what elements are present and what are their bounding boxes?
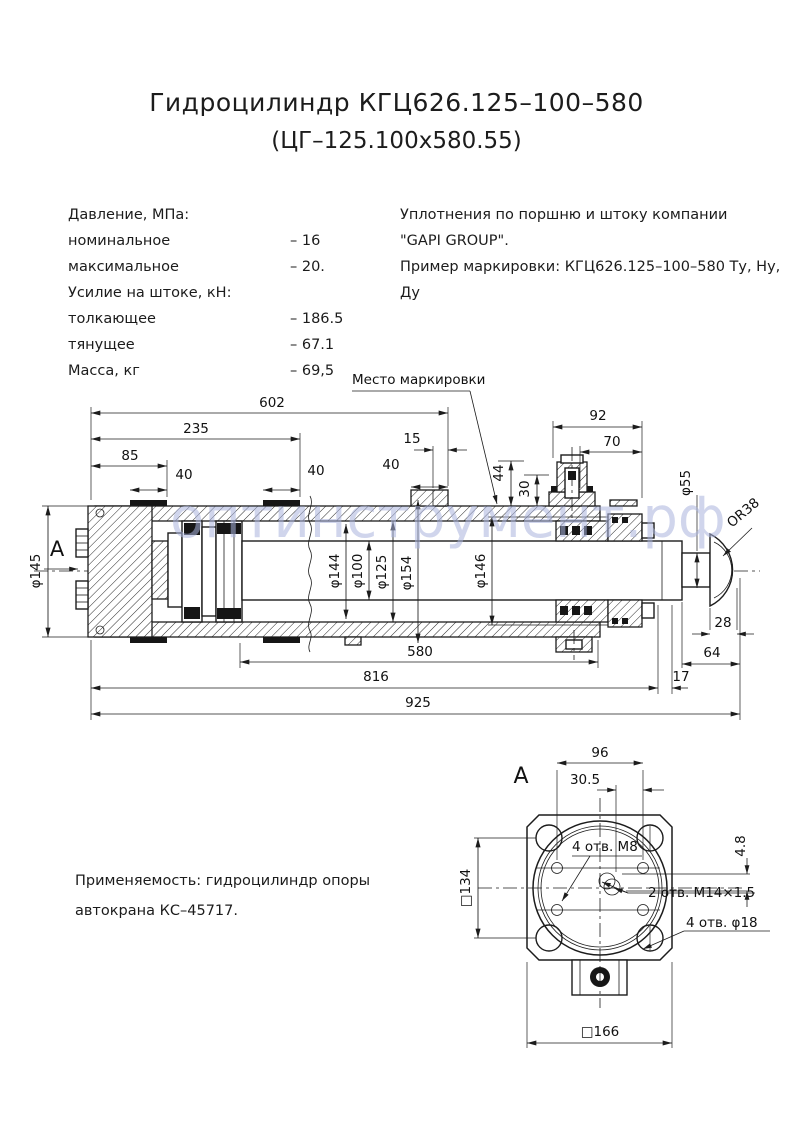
dim-d146: φ146 [473, 554, 489, 589]
dim-44: 44 [491, 464, 507, 481]
dim-30: 30 [517, 480, 533, 497]
view-arrow-label: А [50, 537, 65, 561]
dim-15: 15 [403, 431, 420, 447]
dim-925: 925 [405, 695, 431, 711]
dim-85: 85 [121, 448, 138, 464]
dim-96: 96 [591, 745, 608, 761]
section-view-a: А [458, 745, 770, 1048]
dim-sq134: □134 [458, 869, 474, 908]
dim-235: 235 [183, 421, 209, 437]
drawing-sheet: Гидроцилиндр КГЦ626.125–100–580 (ЦГ–125.… [0, 0, 793, 1123]
dim-28: 28 [714, 615, 731, 631]
dim-d144: φ144 [327, 554, 343, 589]
dim-30-5: 30.5 [570, 772, 600, 788]
dim-40c: 40 [382, 457, 399, 473]
dim-sq166: □166 [581, 1024, 620, 1040]
dim-40a: 40 [175, 467, 192, 483]
technical-drawing: А φ145 602 235 85 40 40 [0, 0, 793, 1123]
main-view: А φ145 602 235 85 40 40 [28, 372, 763, 720]
flange [478, 798, 744, 1008]
dim-92: 92 [589, 408, 606, 424]
end-cap [76, 506, 152, 637]
note-m8: 4 отв. М8 [572, 839, 638, 855]
dim-r38: OR38 [724, 495, 763, 531]
marking-label: Место маркировки [352, 372, 485, 388]
dim-d145: φ145 [28, 554, 44, 589]
dim-d154: φ154 [399, 556, 415, 591]
view-a-label: А [513, 764, 528, 789]
dim-602: 602 [259, 395, 285, 411]
dim-40b: 40 [307, 463, 324, 479]
dim-4-8: 4.8 [733, 835, 749, 856]
dim-816: 816 [363, 669, 389, 685]
dim-580: 580 [407, 644, 433, 660]
dim-70: 70 [603, 434, 620, 450]
dim-d55: φ55 [678, 470, 694, 496]
marking-leader [470, 391, 497, 504]
piston-assembly [152, 521, 242, 622]
dim-17: 17 [672, 669, 689, 685]
rod-sphere-end [682, 534, 733, 606]
note-d18: 4 отв. φ18 [686, 915, 758, 931]
dim-d125: φ125 [374, 555, 390, 590]
dim-64: 64 [703, 645, 720, 661]
view-a-dimensions: 96 30.5 4.8 □134 □166 4 отв. М8 [458, 745, 770, 1048]
dim-d100: φ100 [350, 554, 366, 589]
